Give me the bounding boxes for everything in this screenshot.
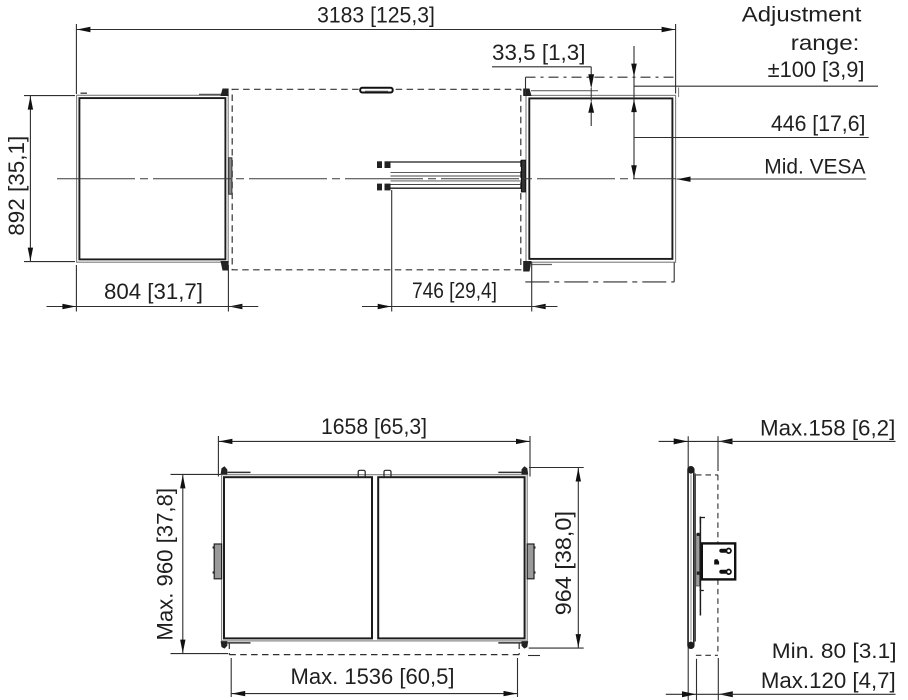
svg-text:Mid. VESA: Mid. VESA: [764, 154, 866, 178]
svg-text:Max.158 [6,2]: Max.158 [6,2]: [760, 415, 895, 440]
svg-text:Max. 960 [37,8]: Max. 960 [37,8]: [152, 488, 177, 641]
svg-text:804 [31,7]: 804 [31,7]: [104, 279, 203, 304]
svg-text:892 [35,1]: 892 [35,1]: [4, 136, 29, 236]
svg-text:446 [17,6]: 446 [17,6]: [771, 111, 865, 136]
svg-text:Max. 1536 [60,5]: Max. 1536 [60,5]: [291, 664, 455, 689]
svg-text:±100 [3,9]: ±100 [3,9]: [768, 57, 865, 82]
svg-text:964 [38,0]: 964 [38,0]: [551, 511, 576, 615]
svg-text:Adjustment: Adjustment: [742, 4, 862, 27]
svg-text:range:: range:: [791, 32, 860, 55]
svg-text:Max.120 [4,7]: Max.120 [4,7]: [761, 668, 896, 693]
svg-text:746 [29,4]: 746 [29,4]: [412, 278, 497, 303]
svg-text:33,5 [1,3]: 33,5 [1,3]: [492, 40, 586, 65]
svg-text:3183 [125,3]: 3183 [125,3]: [317, 2, 435, 27]
svg-text:Min. 80 [3.1]: Min. 80 [3.1]: [772, 640, 897, 663]
svg-text:1658 [65,3]: 1658 [65,3]: [321, 414, 427, 439]
